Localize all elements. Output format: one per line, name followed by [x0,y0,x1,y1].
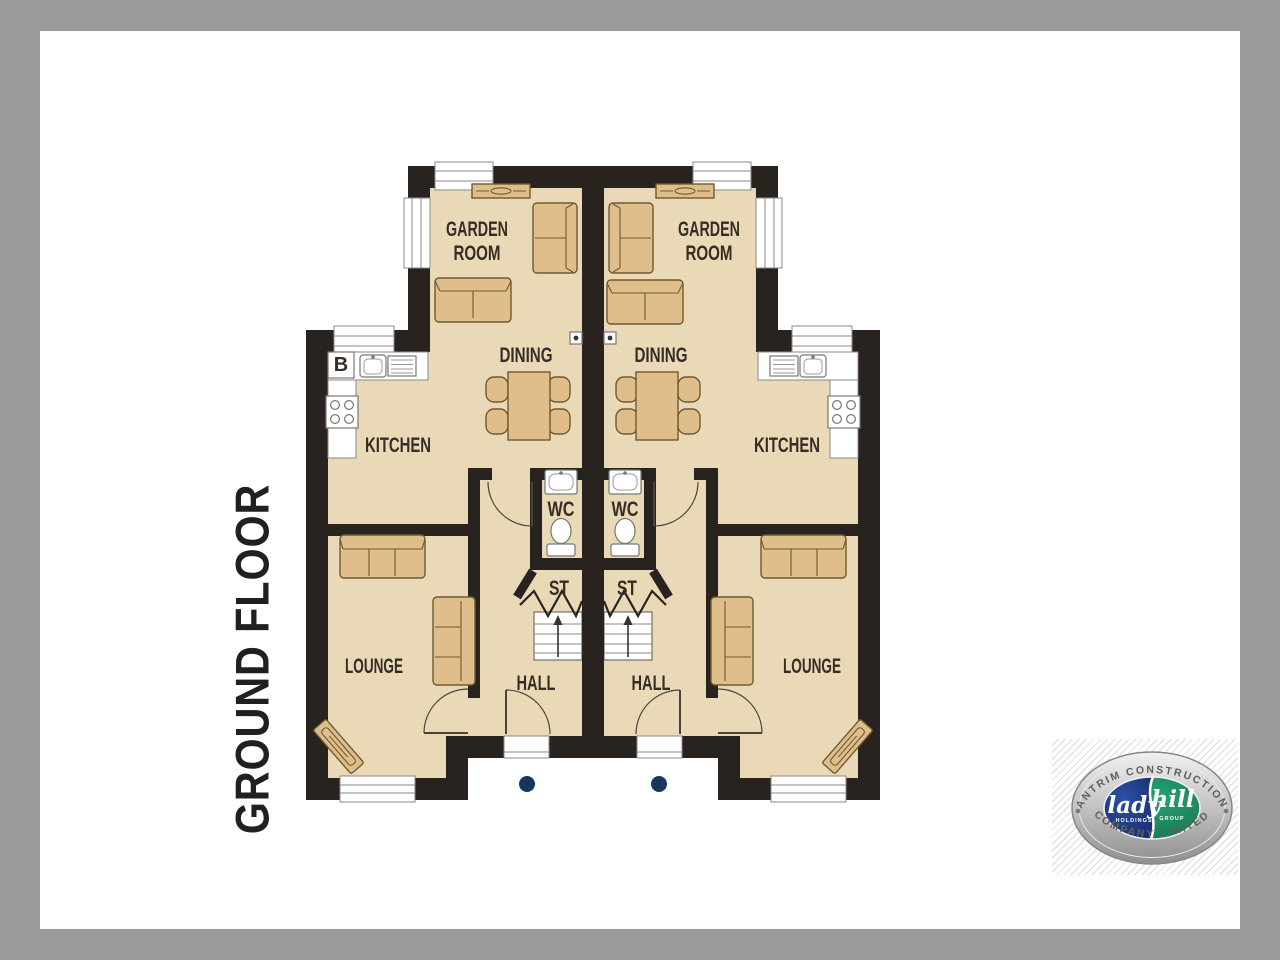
party-wall [582,166,604,758]
room-label-hall-right: HALL [632,672,671,695]
room-label-garden-left-1: GARDEN [446,218,508,241]
room-label-dining-left: DINING [500,344,553,367]
room-label-hall-left: HALL [517,672,556,695]
room-label-lounge-right: LOUNGE [783,655,841,678]
room-label-store-left: ST [549,577,569,600]
boiler-label: B [334,354,348,376]
garden-sofa-horizontal-left [435,278,511,322]
garden-sofa-horizontal-right [607,280,683,324]
unit-left [306,162,582,802]
unit-right [604,162,880,802]
room-label-store-right: ST [617,577,637,600]
room-label-garden-left-2: ROOM [454,242,501,265]
room-label-garden-right-1: GARDEN [678,218,740,241]
room-label-wc-right: WC [612,498,639,521]
room-label-kitchen-right: KITCHEN [754,434,820,457]
floor-plan: B GARDEN ROOM DINING KITCHEN WC ST HALL … [0,0,1280,960]
room-label-dining-right: DINING [635,344,688,367]
room-label-garden-right-2: ROOM [686,242,733,265]
room-label-lounge-left: LOUNGE [345,655,403,678]
room-label-wc-left: WC [548,498,575,521]
room-label-kitchen-left: KITCHEN [365,434,431,457]
